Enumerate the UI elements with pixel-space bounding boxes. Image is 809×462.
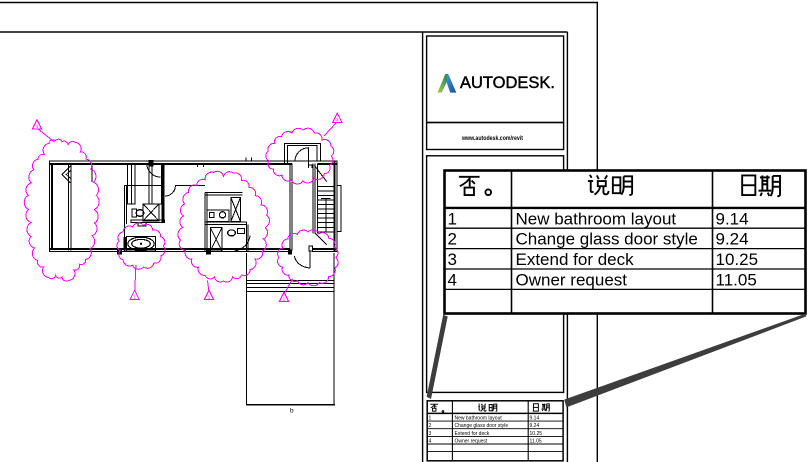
svg-text:New bathroom layout: New bathroom layout [516, 209, 677, 228]
svg-text:Owner request: Owner request [455, 438, 488, 444]
svg-text:1: 1 [448, 209, 457, 228]
svg-text:4: 4 [429, 438, 432, 444]
svg-text:10.25: 10.25 [716, 250, 759, 269]
svg-text:10.25: 10.25 [530, 431, 543, 437]
svg-text:3: 3 [429, 431, 432, 437]
svg-text:Extend for deck: Extend for deck [455, 431, 490, 437]
svg-text:AUTODESK.: AUTODESK. [460, 74, 555, 92]
svg-text:9.24: 9.24 [530, 423, 540, 429]
svg-text:1: 1 [429, 416, 432, 422]
svg-text:New bathroom layout: New bathroom layout [455, 416, 503, 422]
svg-text:2: 2 [429, 423, 432, 429]
svg-text:Change glass door style: Change glass door style [516, 230, 698, 249]
svg-text:11.05: 11.05 [530, 438, 542, 444]
svg-text:Change glass door style: Change glass door style [455, 423, 509, 429]
svg-text:11.05: 11.05 [716, 271, 757, 290]
svg-text:b: b [290, 408, 294, 415]
svg-text:9.14: 9.14 [530, 416, 540, 422]
svg-text:Owner request: Owner request [516, 271, 628, 290]
svg-text:Extend for deck: Extend for deck [516, 250, 635, 269]
svg-text:9.24: 9.24 [716, 230, 749, 249]
svg-text:3: 3 [448, 250, 457, 269]
svg-text:4: 4 [448, 271, 457, 290]
svg-text:www.autodesk.com/revit: www.autodesk.com/revit [461, 136, 523, 142]
svg-text:9.14: 9.14 [716, 209, 749, 228]
svg-text:2: 2 [448, 230, 457, 249]
